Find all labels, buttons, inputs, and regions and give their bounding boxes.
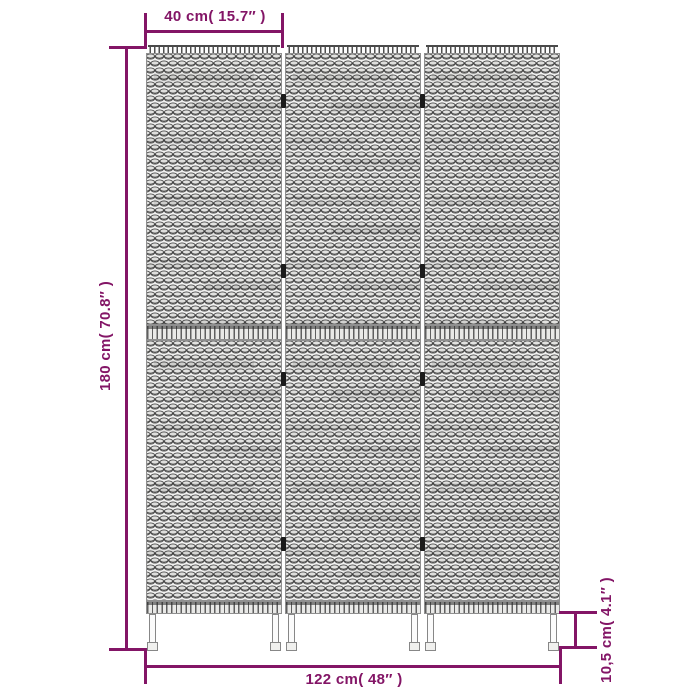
panel-upper-weave xyxy=(285,53,421,325)
panel-leg xyxy=(427,614,434,644)
product-dimension-diagram: 40 cm( 15.7″ ) 180 cm( 70.8″ ) 122 cm( 4… xyxy=(0,0,700,700)
hinge xyxy=(281,372,286,386)
panel-leg xyxy=(272,614,279,644)
panel-leg xyxy=(149,614,156,644)
hinge xyxy=(420,537,425,551)
dim-leg-height-tick-top xyxy=(559,611,597,614)
panel-upper-weave xyxy=(146,53,282,325)
hinge xyxy=(281,537,286,551)
dim-leg-height-tick-bottom xyxy=(559,646,597,649)
dim-height-tick-top xyxy=(109,46,147,49)
panel-middle-rail xyxy=(285,325,421,340)
panel-1 xyxy=(146,45,282,655)
dim-panel-width-tick-left xyxy=(144,13,147,48)
panel-middle-rail xyxy=(146,325,282,340)
panel-foot xyxy=(425,642,436,651)
hinge xyxy=(420,264,425,278)
hinge xyxy=(281,264,286,278)
panel-foot xyxy=(147,642,158,651)
panel-bottom-rail xyxy=(146,601,282,614)
panel-foot xyxy=(548,642,559,651)
dim-leg-height-line xyxy=(574,611,577,649)
hinge xyxy=(420,372,425,386)
hinge xyxy=(420,94,425,108)
panel-bottom-rail xyxy=(424,601,560,614)
dim-height-label: 180 cm( 70.8″ ) xyxy=(96,226,116,446)
panel-leg xyxy=(288,614,295,644)
panel-foot xyxy=(286,642,297,651)
hinge xyxy=(281,94,286,108)
dim-height-line xyxy=(125,46,128,651)
dim-panel-width-label: 40 cm( 15.7″ ) xyxy=(146,8,284,25)
panel-leg xyxy=(411,614,418,644)
panel-bottom-rail xyxy=(285,601,421,614)
dim-total-width-label: 122 cm( 48″ ) xyxy=(146,671,562,688)
dim-leg-height-label: 10,5 cm( 4.1″ ) xyxy=(597,520,617,700)
panel-3 xyxy=(424,45,560,655)
panel-lower-weave xyxy=(424,340,560,601)
dim-panel-width-tick-right xyxy=(281,13,284,48)
dim-panel-width-line xyxy=(146,30,284,33)
panel-2 xyxy=(285,45,421,655)
dim-height-tick-bottom xyxy=(109,648,147,651)
panel-middle-rail xyxy=(424,325,560,340)
panel-foot xyxy=(270,642,281,651)
panel-leg xyxy=(550,614,557,644)
panel-upper-weave xyxy=(424,53,560,325)
panel-lower-weave xyxy=(146,340,282,601)
panel-foot xyxy=(409,642,420,651)
panel-lower-weave xyxy=(285,340,421,601)
dim-total-width-line xyxy=(146,665,562,668)
